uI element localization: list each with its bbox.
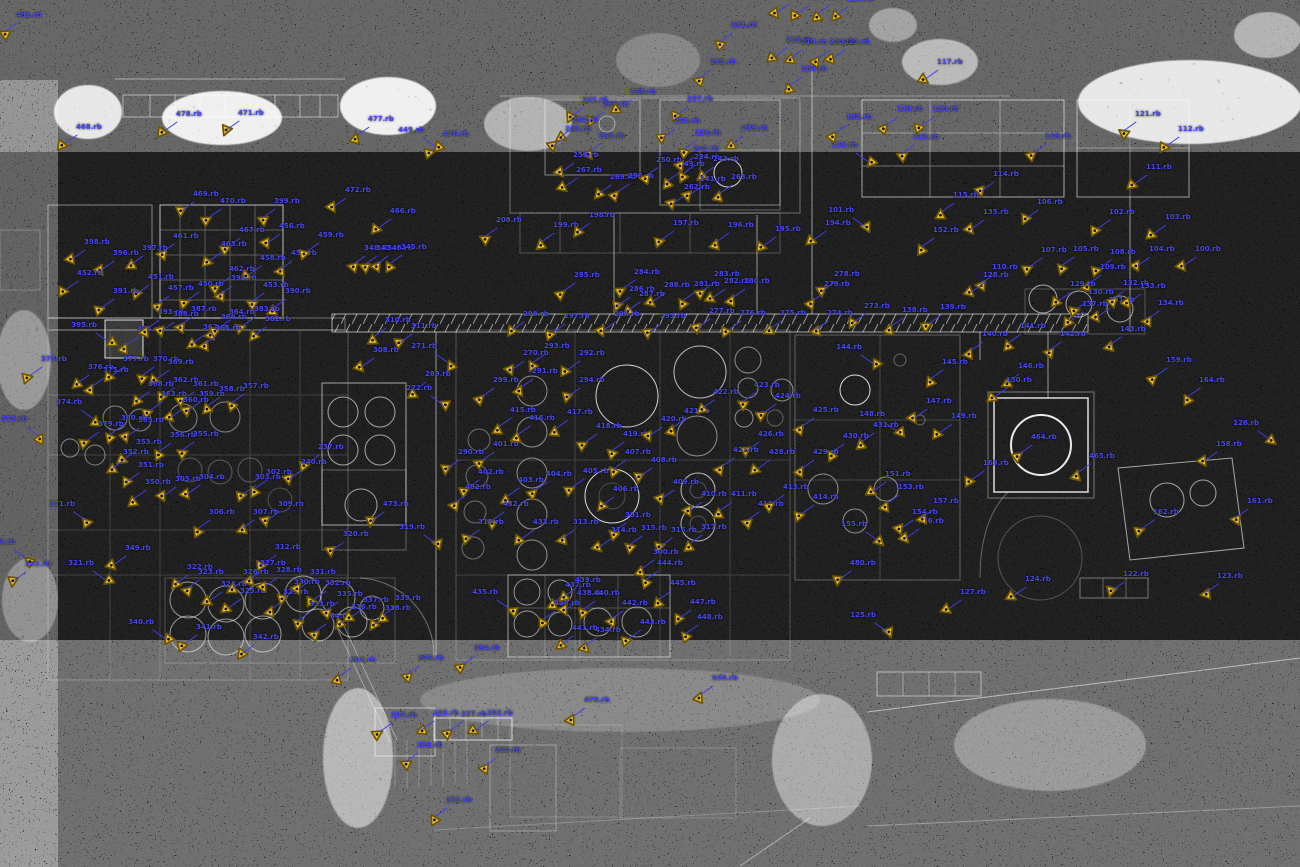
scan-marker[interactable]: 111.rb bbox=[1126, 178, 1141, 193]
scan-marker[interactable]: 415.rb bbox=[490, 421, 505, 436]
scan-marker[interactable]: 425.rb bbox=[793, 421, 808, 436]
scan-marker[interactable]: 101.rb bbox=[860, 221, 875, 236]
scan-marker[interactable]: 163.rb bbox=[963, 474, 978, 489]
scan-marker[interactable]: 479.rb bbox=[564, 711, 579, 726]
scan-marker[interactable]: 222.rb bbox=[475, 761, 490, 776]
scan-marker[interactable]: 202.rb bbox=[467, 724, 482, 739]
scan-label: 371.rb bbox=[49, 500, 75, 508]
scan-marker[interactable]: 481.rb bbox=[0, 26, 11, 41]
scan-label: 142.rb bbox=[1060, 330, 1086, 338]
scan-marker[interactable]: 157.rb bbox=[913, 512, 928, 527]
scan-label: 226.rb bbox=[417, 741, 443, 749]
scan-marker[interactable]: 463.rb bbox=[201, 255, 216, 270]
scan-marker[interactable]: 326.rb bbox=[223, 583, 238, 598]
scan-marker[interactable]: 250.rb bbox=[636, 171, 651, 186]
scan-marker[interactable]: 370.rb bbox=[133, 370, 148, 385]
scan-marker[interactable]: 137.rb bbox=[1062, 315, 1077, 330]
scan-marker[interactable]: 352.rb bbox=[103, 463, 118, 478]
scan-marker[interactable]: 385.rb bbox=[118, 431, 133, 446]
scan-marker[interactable]: 455.rb bbox=[271, 264, 286, 279]
scan-marker[interactable]: 253.rb bbox=[545, 140, 560, 155]
scan-label: 364.rb bbox=[229, 308, 255, 316]
scan-marker[interactable]: 320.rb bbox=[323, 545, 338, 560]
scan-label: 469.rb bbox=[193, 190, 219, 198]
scan-label: 301.rb bbox=[625, 511, 651, 519]
scan-marker[interactable]: 411.rb bbox=[711, 505, 726, 520]
scan-marker[interactable]: 189.rb bbox=[781, 80, 796, 95]
scan-marker[interactable]: 164.rb bbox=[1179, 391, 1194, 406]
scan-marker[interactable]: 377.rb bbox=[103, 370, 118, 385]
scan-label: 323.rb bbox=[198, 568, 224, 576]
scan-marker[interactable]: 448.rb bbox=[677, 628, 692, 643]
scan-marker[interactable]: 399.rb bbox=[254, 212, 269, 227]
scan-marker[interactable]: 394.rb bbox=[117, 340, 132, 355]
scan-marker[interactable]: 358.rb bbox=[199, 400, 214, 415]
scan-label: 280.rb bbox=[744, 277, 770, 285]
scan-marker[interactable]: 379.rb bbox=[78, 435, 93, 450]
scan-triangle-icon bbox=[502, 601, 521, 620]
scan-marker[interactable]: 284.rb bbox=[614, 283, 629, 298]
scan-label: 188.rb bbox=[846, 113, 872, 121]
scan-label: 285.rb bbox=[574, 271, 600, 279]
scan-label: 310.rb bbox=[385, 316, 411, 324]
scan-marker[interactable]: 228.rb bbox=[768, 7, 783, 22]
scan-marker[interactable]: 272.rb bbox=[438, 399, 453, 414]
scan-marker[interactable]: 135.rb bbox=[963, 223, 978, 238]
scan-marker[interactable]: 435.rb bbox=[504, 603, 519, 618]
scan-marker[interactable]: 301.rb bbox=[605, 526, 620, 541]
scan-marker[interactable]: 145.rb bbox=[922, 373, 937, 388]
scan-marker[interactable]: 249.rb bbox=[659, 175, 674, 190]
scan-marker[interactable]: 431.rb bbox=[853, 436, 868, 451]
scan-marker[interactable]: 226.rb bbox=[397, 756, 412, 771]
scan-marker[interactable]: 112.rb bbox=[1158, 140, 1173, 155]
scan-marker[interactable]: 429.rb bbox=[793, 463, 808, 478]
scan-marker[interactable]: 449.rb bbox=[430, 141, 445, 156]
scan-label: 423.rb bbox=[754, 381, 780, 389]
scan-label: 440.rb bbox=[594, 589, 620, 597]
scan-marker[interactable]: 124.rb bbox=[1005, 590, 1020, 605]
scan-marker[interactable]: 459.rb bbox=[298, 246, 313, 261]
scan-marker[interactable]: 342.rb bbox=[233, 648, 248, 663]
scan-marker[interactable]: 230.rb bbox=[413, 724, 428, 739]
scan-marker[interactable]: 102.rb bbox=[1089, 223, 1104, 238]
scan-marker[interactable]: 131.rb bbox=[1089, 311, 1104, 326]
scan-marker[interactable]: 337.rb bbox=[343, 611, 358, 626]
scan-marker[interactable]: 281.rb bbox=[674, 295, 689, 310]
scan-marker[interactable]: 360.rb bbox=[163, 411, 178, 426]
scan-marker[interactable]: 345.rb bbox=[381, 258, 396, 273]
scan-marker[interactable]: 231.rb bbox=[711, 36, 726, 51]
scan-marker[interactable]: 424.rb bbox=[755, 407, 770, 422]
scan-marker[interactable]: 308.rb bbox=[353, 361, 368, 376]
scan-marker[interactable]: 306.rb bbox=[189, 523, 204, 538]
scan-marker[interactable]: 328.rb bbox=[256, 581, 271, 596]
scan-label: 194.rb bbox=[825, 219, 851, 227]
scan-label: 202.rb bbox=[487, 709, 513, 717]
scan-marker[interactable]: 254.rb bbox=[654, 132, 669, 147]
scan-marker[interactable]: 155.rb bbox=[873, 535, 888, 550]
scan-label: 252.rb bbox=[599, 132, 625, 140]
scan-marker[interactable]: 470.rb bbox=[200, 212, 215, 227]
scan-marker[interactable]: 139.rb bbox=[920, 318, 935, 333]
scan-marker[interactable]: 227.rb bbox=[441, 725, 456, 740]
scan-marker[interactable]: 392.rb bbox=[211, 289, 226, 304]
scan-marker[interactable]: 298.rb bbox=[503, 325, 518, 340]
scan-marker[interactable]: 288.rb bbox=[644, 296, 659, 311]
scan-marker[interactable]: 106.rb bbox=[1017, 213, 1032, 228]
scan-marker[interactable]: 355.rb bbox=[173, 445, 188, 460]
scan-label: 311.rb bbox=[411, 322, 437, 330]
scan-marker[interactable]: 221.rb bbox=[809, 8, 824, 23]
scan-label: 482.rb bbox=[465, 483, 491, 491]
scan-marker[interactable]: 343.rb bbox=[5, 575, 20, 590]
scan-marker[interactable]: 198.rb bbox=[569, 226, 584, 241]
scan-marker[interactable]: 405.rb bbox=[563, 482, 578, 497]
scan-marker[interactable]: 421.rb bbox=[664, 422, 679, 437]
scan-marker[interactable]: 199.rb bbox=[533, 236, 548, 251]
scan-marker[interactable]: 423.rb bbox=[734, 396, 749, 411]
scan-label: 158.rb bbox=[1216, 440, 1242, 448]
scan-label: 235.rb bbox=[710, 58, 736, 66]
scan-marker[interactable]: 313.rb bbox=[553, 533, 568, 548]
scan-label: 418.rb bbox=[596, 422, 622, 430]
scan-label: 425.rb bbox=[813, 406, 839, 414]
scan-marker[interactable]: 413.rb bbox=[763, 498, 778, 513]
scan-label: 446.rb bbox=[712, 674, 738, 682]
scan-marker[interactable]: 121.rb bbox=[1115, 125, 1130, 140]
scan-marker[interactable]: 420.rb bbox=[641, 430, 656, 445]
scan-marker[interactable]: 196.rb bbox=[708, 236, 723, 251]
scan-marker[interactable]: 144.rb bbox=[868, 358, 883, 373]
scan-marker[interactable]: 297.rb bbox=[544, 327, 559, 342]
scan-marker[interactable]: 107.rb bbox=[1021, 261, 1036, 276]
scan-triangle-icon bbox=[870, 532, 891, 553]
scan-marker[interactable]: 391.rb bbox=[93, 302, 108, 317]
scan-marker[interactable]: 127.rb bbox=[940, 603, 955, 618]
scan-label: 399.rb bbox=[274, 197, 300, 205]
scan-marker[interactable]: 240.rb bbox=[281, 473, 296, 488]
scan-marker[interactable]: 446.rb bbox=[692, 689, 707, 704]
scan-marker[interactable]: 436.rb bbox=[534, 614, 549, 629]
scan-marker[interactable]: 211.rb bbox=[426, 811, 441, 826]
scan-marker[interactable]: 406.rb bbox=[593, 500, 608, 515]
scan-label: 198.rb bbox=[589, 211, 615, 219]
scan-marker[interactable]: 382.rb bbox=[245, 330, 260, 345]
scan-marker[interactable]: 397.rb bbox=[122, 259, 137, 274]
scan-marker[interactable]: 452.rb bbox=[57, 284, 72, 299]
scan-marker[interactable]: 469.rb bbox=[173, 205, 188, 220]
scan-marker[interactable]: 119.rb bbox=[877, 120, 892, 135]
scan-label: 137.rb bbox=[1082, 300, 1108, 308]
scan-marker[interactable]: 128.rb bbox=[963, 286, 978, 301]
scan-marker[interactable]: 258.rb bbox=[610, 103, 625, 118]
scan-marker[interactable]: 414.rb bbox=[793, 508, 808, 523]
scan-marker[interactable]: 398.rb bbox=[64, 253, 79, 268]
scan-marker[interactable]: 350.rb bbox=[125, 493, 140, 508]
scan-marker[interactable]: 442.rb bbox=[602, 614, 617, 629]
scan-marker[interactable]: 315.rb bbox=[621, 539, 636, 554]
scan-marker[interactable]: 282.rb bbox=[704, 292, 719, 307]
scan-label: 110.rb bbox=[992, 263, 1018, 271]
scan-label: 112.rb bbox=[1178, 125, 1204, 133]
scan-label: 105.rb bbox=[1073, 245, 1099, 253]
scan-marker[interactable]: 285.rb bbox=[554, 286, 569, 301]
scan-marker[interactable]: 262.rb bbox=[664, 198, 679, 213]
scan-label: 445.rb bbox=[670, 579, 696, 587]
scan-label: 481.rb bbox=[16, 11, 42, 19]
scan-marker[interactable]: 269.rb bbox=[590, 188, 605, 203]
scan-marker[interactable]: 371.rb bbox=[81, 515, 96, 530]
scan-marker[interactable]: 277.rb bbox=[689, 322, 704, 337]
scan-marker[interactable]: 466.rb bbox=[370, 222, 385, 237]
scan-marker[interactable]: 482.rb bbox=[445, 498, 460, 513]
scan-marker[interactable]: 224.rb bbox=[371, 726, 386, 741]
scan-marker[interactable]: 473.rb bbox=[363, 515, 378, 530]
scan-label: 141.rb bbox=[1020, 322, 1046, 330]
scan-marker[interactable]: 440.rb bbox=[574, 604, 589, 619]
scan-marker[interactable]: 117.rb bbox=[917, 73, 932, 88]
scan-marker[interactable]: 229.rb bbox=[789, 8, 804, 23]
scan-marker[interactable]: 126.rb bbox=[1265, 434, 1280, 449]
scan-label: 129.rb bbox=[1070, 280, 1096, 288]
scan-marker[interactable]: 205.rb bbox=[398, 669, 413, 684]
scan-marker[interactable]: 443.rb bbox=[620, 633, 635, 648]
scan-label: 157.rb bbox=[933, 497, 959, 505]
scan-marker[interactable]: 333.rb bbox=[289, 615, 304, 630]
scan-marker[interactable]: 416.rb bbox=[509, 429, 524, 444]
scan-marker[interactable]: 115.rb bbox=[933, 206, 948, 221]
scan-label: 404.rb bbox=[546, 470, 572, 478]
scan-label: 447.rb bbox=[690, 598, 716, 606]
scan-marker[interactable]: 241.rb bbox=[680, 190, 695, 205]
scan-label: 111.rb bbox=[1146, 163, 1172, 171]
scan-marker[interactable]: 317.rb bbox=[681, 538, 696, 553]
scan-marker[interactable]: 334.rb bbox=[305, 627, 320, 642]
scan-marker[interactable]: 441.rb bbox=[552, 639, 567, 654]
scan-marker[interactable]: 305.rb bbox=[155, 490, 170, 505]
scan-marker[interactable]: 319.rb bbox=[431, 538, 446, 553]
scan-marker[interactable]: 433.rb bbox=[513, 533, 528, 548]
scan-marker[interactable]: 278.rb bbox=[814, 285, 829, 300]
scan-marker[interactable]: 147.rb bbox=[906, 412, 921, 427]
scan-marker[interactable]: 321.rb bbox=[100, 574, 115, 589]
scan-marker[interactable]: 148.rb bbox=[891, 425, 906, 440]
scan-marker[interactable]: 468.rb bbox=[56, 138, 71, 153]
scan-marker[interactable]: 275.rb bbox=[760, 324, 775, 339]
scan-label: 365.rb bbox=[215, 324, 241, 332]
scan-marker[interactable]: 122.rb bbox=[1103, 585, 1118, 600]
scan-marker[interactable]: 380.rb bbox=[101, 429, 116, 444]
scan-marker[interactable]: 351.rb bbox=[118, 476, 133, 491]
scan-marker[interactable]: 295.rb bbox=[640, 327, 655, 342]
scan-marker[interactable]: 208.rb bbox=[476, 231, 491, 246]
scan-label: 223.rb bbox=[844, 38, 870, 46]
scan-marker[interactable]: 235.rb bbox=[690, 73, 705, 88]
scan-label: 102.rb bbox=[1109, 208, 1135, 216]
scan-label: 428.rb bbox=[769, 448, 795, 456]
scan-marker[interactable]: 372.rb bbox=[33, 430, 48, 445]
scan-marker[interactable]: 161.rb bbox=[1227, 512, 1242, 527]
scan-marker[interactable]: 404.rb bbox=[526, 485, 541, 500]
scan-marker[interactable]: 156.rb bbox=[898, 532, 913, 547]
scan-marker[interactable]: 129.rb bbox=[1050, 295, 1065, 310]
scan-label: 101.rb bbox=[828, 206, 854, 214]
scan-marker[interactable]: 428.rb bbox=[749, 463, 764, 478]
scan-marker[interactable]: 267.rb bbox=[556, 181, 571, 196]
scan-marker[interactable]: 465.rb bbox=[1069, 467, 1084, 482]
scan-marker[interactable]: 409.rb bbox=[653, 493, 668, 508]
scan-marker[interactable]: 118.rb bbox=[863, 156, 878, 171]
scan-marker[interactable]: 341.rb bbox=[176, 638, 191, 653]
scan-marker[interactable]: 195.rb bbox=[755, 240, 770, 255]
scan-marker[interactable]: 471.rb bbox=[218, 124, 233, 139]
scan-marker[interactable]: 356.rb bbox=[150, 446, 165, 461]
scan-marker[interactable]: 296.rb bbox=[594, 325, 609, 340]
scan-marker[interactable]: 280.rb bbox=[724, 292, 739, 307]
scan-marker[interactable]: 274.rb bbox=[807, 324, 822, 339]
scan-marker[interactable]: 444.rb bbox=[637, 574, 652, 589]
scan-marker[interactable]: 263.rb bbox=[711, 188, 726, 203]
scan-marker[interactable]: 271.rb bbox=[443, 357, 458, 372]
scan-marker[interactable]: 357.rb bbox=[223, 397, 238, 412]
scan-marker[interactable]: 331.rb bbox=[290, 583, 305, 598]
scan-marker[interactable]: 113.rb bbox=[893, 148, 908, 163]
scan-label: 275.rb bbox=[780, 309, 806, 317]
scan-label: 377.rb bbox=[123, 355, 149, 363]
scan-marker[interactable]: 142.rb bbox=[1040, 345, 1055, 360]
scan-marker[interactable]: 291.rb bbox=[512, 382, 527, 397]
scan-marker[interactable]: 309.rb bbox=[258, 515, 273, 530]
scan-marker[interactable]: 152.rb bbox=[913, 241, 928, 256]
scan-marker[interactable]: 387.rb bbox=[171, 320, 186, 335]
scan-label: 480.rb bbox=[850, 559, 876, 567]
scan-label: 413.rb bbox=[783, 483, 809, 491]
scan-marker[interactable]: 292.rb bbox=[559, 364, 574, 379]
scan-marker[interactable]: 197.rb bbox=[653, 234, 668, 249]
scan-marker[interactable]: 461.rb bbox=[153, 247, 168, 262]
scan-marker[interactable]: 158.rb bbox=[1196, 455, 1211, 470]
scan-marker[interactable]: 290.rb bbox=[438, 463, 453, 478]
scan-marker[interactable]: 410.rb bbox=[681, 505, 696, 520]
scan-marker[interactable]: 203.rb bbox=[330, 671, 345, 686]
scan-label: 442.rb bbox=[622, 599, 648, 607]
scan-marker[interactable]: 388.rb bbox=[153, 325, 168, 340]
scan-marker[interactable]: 225.rb bbox=[827, 10, 842, 25]
scan-marker[interactable]: 307.rb bbox=[233, 523, 248, 538]
scan-marker[interactable]: 417.rb bbox=[547, 423, 562, 438]
scan-marker[interactable]: 373.rb bbox=[21, 370, 36, 385]
scan-marker[interactable]: 299.rb bbox=[473, 391, 488, 406]
scan-marker[interactable]: 464.rb bbox=[1011, 448, 1026, 463]
scan-marker[interactable]: 422.rb bbox=[693, 403, 708, 418]
scan-marker[interactable]: 375.rb bbox=[83, 381, 98, 396]
scan-label: 444.rb bbox=[657, 559, 683, 567]
scan-marker[interactable]: 477.rb bbox=[348, 130, 363, 145]
scan-marker[interactable]: 456.rb bbox=[259, 237, 274, 252]
scan-marker[interactable]: 143.rb bbox=[1100, 340, 1115, 355]
scan-marker[interactable]: 194.rb bbox=[805, 234, 820, 249]
scan-label: 385.rb bbox=[138, 416, 164, 424]
scan-label: 477.rb bbox=[368, 115, 394, 123]
scan-marker[interactable]: 105.rb bbox=[1053, 260, 1068, 275]
scan-marker[interactable]: 294.rb bbox=[559, 391, 574, 406]
scan-marker[interactable]: 335.rb bbox=[317, 605, 332, 620]
scan-marker[interactable]: 419.rb bbox=[603, 445, 618, 460]
scan-marker[interactable]: 273.rb bbox=[844, 317, 859, 332]
scan-marker[interactable]: 412.rb bbox=[738, 515, 753, 530]
scan-marker[interactable]: 159.rb bbox=[1146, 371, 1161, 386]
scan-triangle-icon bbox=[865, 355, 885, 375]
scan-marker[interactable]: 162.rb bbox=[1133, 523, 1148, 538]
scan-marker[interactable]: 340.rb bbox=[160, 633, 175, 648]
scan-label: 163.rb bbox=[983, 459, 1009, 467]
scan-marker[interactable]: 314.rb bbox=[591, 541, 606, 556]
scan-marker[interactable]: 384.rb bbox=[454, 659, 469, 674]
scan-marker[interactable]: 256.rb bbox=[608, 187, 623, 202]
scan-marker[interactable]: 430.rb bbox=[823, 447, 838, 462]
scan-label: 456.rb bbox=[279, 222, 305, 230]
scan-marker[interactable]: 276.rb bbox=[720, 324, 735, 339]
scan-marker[interactable]: 304.rb bbox=[179, 488, 194, 503]
scan-marker[interactable]: 100.rb bbox=[1175, 260, 1190, 275]
scan-marker[interactable]: 310.rb bbox=[365, 331, 380, 346]
scan-marker[interactable]: 330.rb bbox=[274, 593, 289, 608]
scan-marker[interactable]: 408.rb bbox=[631, 471, 646, 486]
scan-label: 395.rb bbox=[71, 321, 97, 329]
scan-label: 264.rb bbox=[572, 116, 598, 124]
scan-marker[interactable]: 302.rb bbox=[246, 483, 261, 498]
scan-label: 458.rb bbox=[260, 254, 286, 262]
scan-marker[interactable]: 116.rb bbox=[1025, 147, 1040, 162]
scan-marker[interactable]: 478.rb bbox=[156, 125, 171, 140]
scan-marker[interactable]: 439.rb bbox=[555, 591, 570, 606]
scan-marker[interactable]: 239.rb bbox=[722, 139, 737, 154]
scan-marker[interactable]: 339.rb bbox=[375, 609, 390, 624]
scan-marker[interactable]: 133.rb bbox=[1120, 297, 1135, 312]
scan-marker[interactable]: 365.rb bbox=[195, 339, 210, 354]
scan-marker[interactable]: 318.rb bbox=[458, 533, 473, 548]
scan-marker[interactable]: 418.rb bbox=[576, 437, 591, 452]
scan-marker[interactable]: 427.rb bbox=[713, 461, 728, 476]
scan-marker[interactable]: 325.rb bbox=[220, 602, 235, 617]
scan-marker[interactable]: 138.rb bbox=[882, 321, 897, 336]
scan-marker[interactable]: 480.rb bbox=[830, 574, 845, 589]
scan-marker[interactable]: 393.rb bbox=[138, 323, 153, 338]
scan-marker[interactable]: 234.rb bbox=[674, 168, 689, 183]
scan-marker[interactable]: 323.rb bbox=[178, 583, 193, 598]
scan-marker[interactable]: 219.rb bbox=[781, 53, 796, 68]
scan-marker[interactable]: 123.rb bbox=[1197, 587, 1212, 602]
scan-marker[interactable]: 434.rb bbox=[575, 641, 590, 656]
scan-marker[interactable]: 150.rb bbox=[986, 391, 1001, 406]
scan-label: 318.rb bbox=[478, 518, 504, 526]
scan-marker[interactable]: 359.rb bbox=[179, 405, 194, 420]
scan-marker[interactable]: 472.rb bbox=[325, 201, 340, 216]
scan-label: 374.rb bbox=[56, 398, 82, 406]
scan-marker[interactable]: 324.rb bbox=[201, 595, 216, 610]
scan-marker[interactable]: 149.rb bbox=[931, 427, 946, 442]
scan-marker[interactable]: 125.rb bbox=[882, 626, 897, 641]
scan-marker[interactable]: 141.rb bbox=[1000, 337, 1015, 352]
scan-marker[interactable]: 445.rb bbox=[650, 594, 665, 609]
scan-label: 155.rb bbox=[841, 520, 867, 528]
scan-marker[interactable]: 104.rb bbox=[1129, 260, 1144, 275]
scan-marker[interactable]: 153.rb bbox=[878, 498, 893, 513]
scan-marker[interactable]: 407.rb bbox=[605, 463, 620, 478]
scan-marker[interactable]: 103.rb bbox=[1145, 228, 1160, 243]
scan-marker[interactable]: 188.rb bbox=[826, 128, 841, 143]
